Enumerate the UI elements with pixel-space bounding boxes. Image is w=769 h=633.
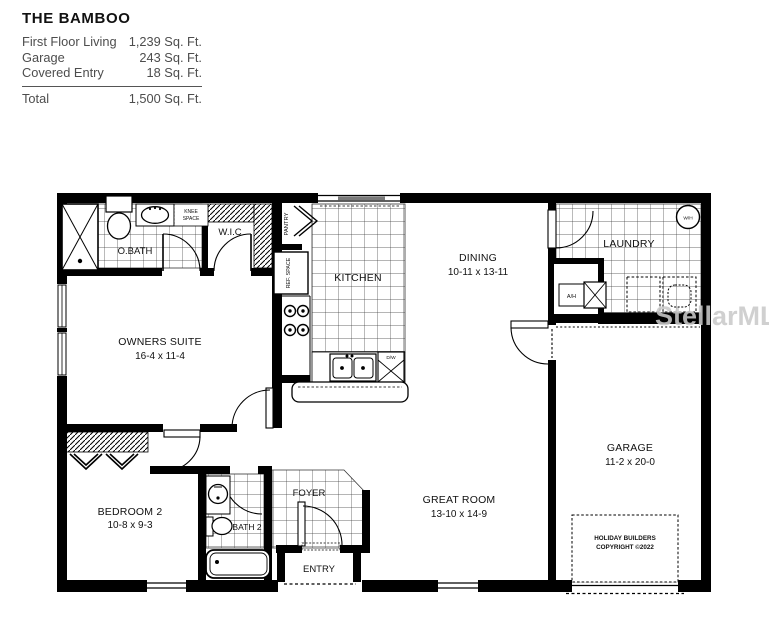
kitchen-peninsula (292, 382, 408, 402)
air-handler: A/H (559, 282, 606, 308)
toilet (106, 196, 132, 239)
shower-drain (78, 259, 82, 263)
bedroom2-closet-shelf (62, 432, 148, 452)
stellar-mls-watermark: StellarMLS (655, 301, 769, 339)
dishwasher-label: D/W (386, 355, 396, 361)
knee-space-label: KNEE (184, 209, 198, 215)
bedroom2-door (164, 430, 200, 471)
stove (285, 306, 309, 336)
room-dims-great-room: 13-10 x 14-9 (431, 509, 488, 520)
water-heater: W/H (677, 206, 700, 229)
bath2-sink (206, 476, 230, 514)
room-dims-dining: 10-11 x 13-11 (448, 267, 509, 278)
tub-drain (215, 560, 219, 564)
wic-door (214, 234, 251, 271)
dishwasher: D/W (378, 352, 404, 382)
room-label-owners-suite: OWNERS SUITE (118, 336, 202, 348)
room-label-garage: GARAGE (607, 442, 653, 454)
wic-shelf (208, 204, 254, 222)
room-label-bedroom2: BEDROOM 2 (98, 506, 163, 518)
floor-plan: KNEE SPACE PANTRY REF. SPACE (0, 0, 769, 633)
ref-space-label: REF. SPACE (286, 257, 292, 288)
room-label-wic: W.I.C (218, 227, 241, 238)
knee-space-label: SPACE (183, 216, 200, 222)
wic-shelf (254, 204, 272, 268)
room-dims-garage: 11-2 x 20-0 (605, 457, 655, 468)
room-label-kitchen: KITCHEN (334, 272, 382, 284)
bifold-doors (70, 454, 138, 469)
room-label-obath: O.BATH (118, 246, 153, 257)
room-label-entry: ENTRY (303, 564, 336, 575)
room-dims-owners-suite: 16-4 x 11-4 (135, 351, 185, 362)
room-dims-bedroom2: 10-8 x 9-3 (107, 520, 152, 531)
kitchen-sink (330, 354, 376, 381)
bath2-toilet (206, 517, 232, 536)
garage-entry-door (511, 321, 552, 364)
vanity-sink (136, 204, 174, 226)
room-label-dining: DINING (459, 252, 497, 264)
builder-copyright: COPYRIGHT ©2022 (596, 543, 654, 551)
great-room-window (438, 583, 478, 588)
bedroom2-window (147, 583, 186, 588)
room-label-bath2: BATH 2 (232, 522, 261, 532)
owners-suite-door (232, 388, 273, 428)
room-label-laundry: LAUNDRY (603, 238, 654, 250)
knee-space: KNEE SPACE (174, 204, 208, 226)
pantry-label: PANTRY (284, 212, 290, 235)
builder-name: HOLIDAY BUILDERS (594, 535, 656, 542)
room-label-foyer: FOYER (293, 488, 326, 499)
room-label-great-room: GREAT ROOM (423, 494, 496, 506)
bathtub (206, 550, 270, 578)
water-heater-label: W/H (683, 216, 693, 222)
garage-door (566, 582, 684, 594)
builder-box: HOLIDAY BUILDERS COPYRIGHT ©2022 (572, 515, 678, 582)
air-handler-label: A/H (567, 294, 576, 300)
